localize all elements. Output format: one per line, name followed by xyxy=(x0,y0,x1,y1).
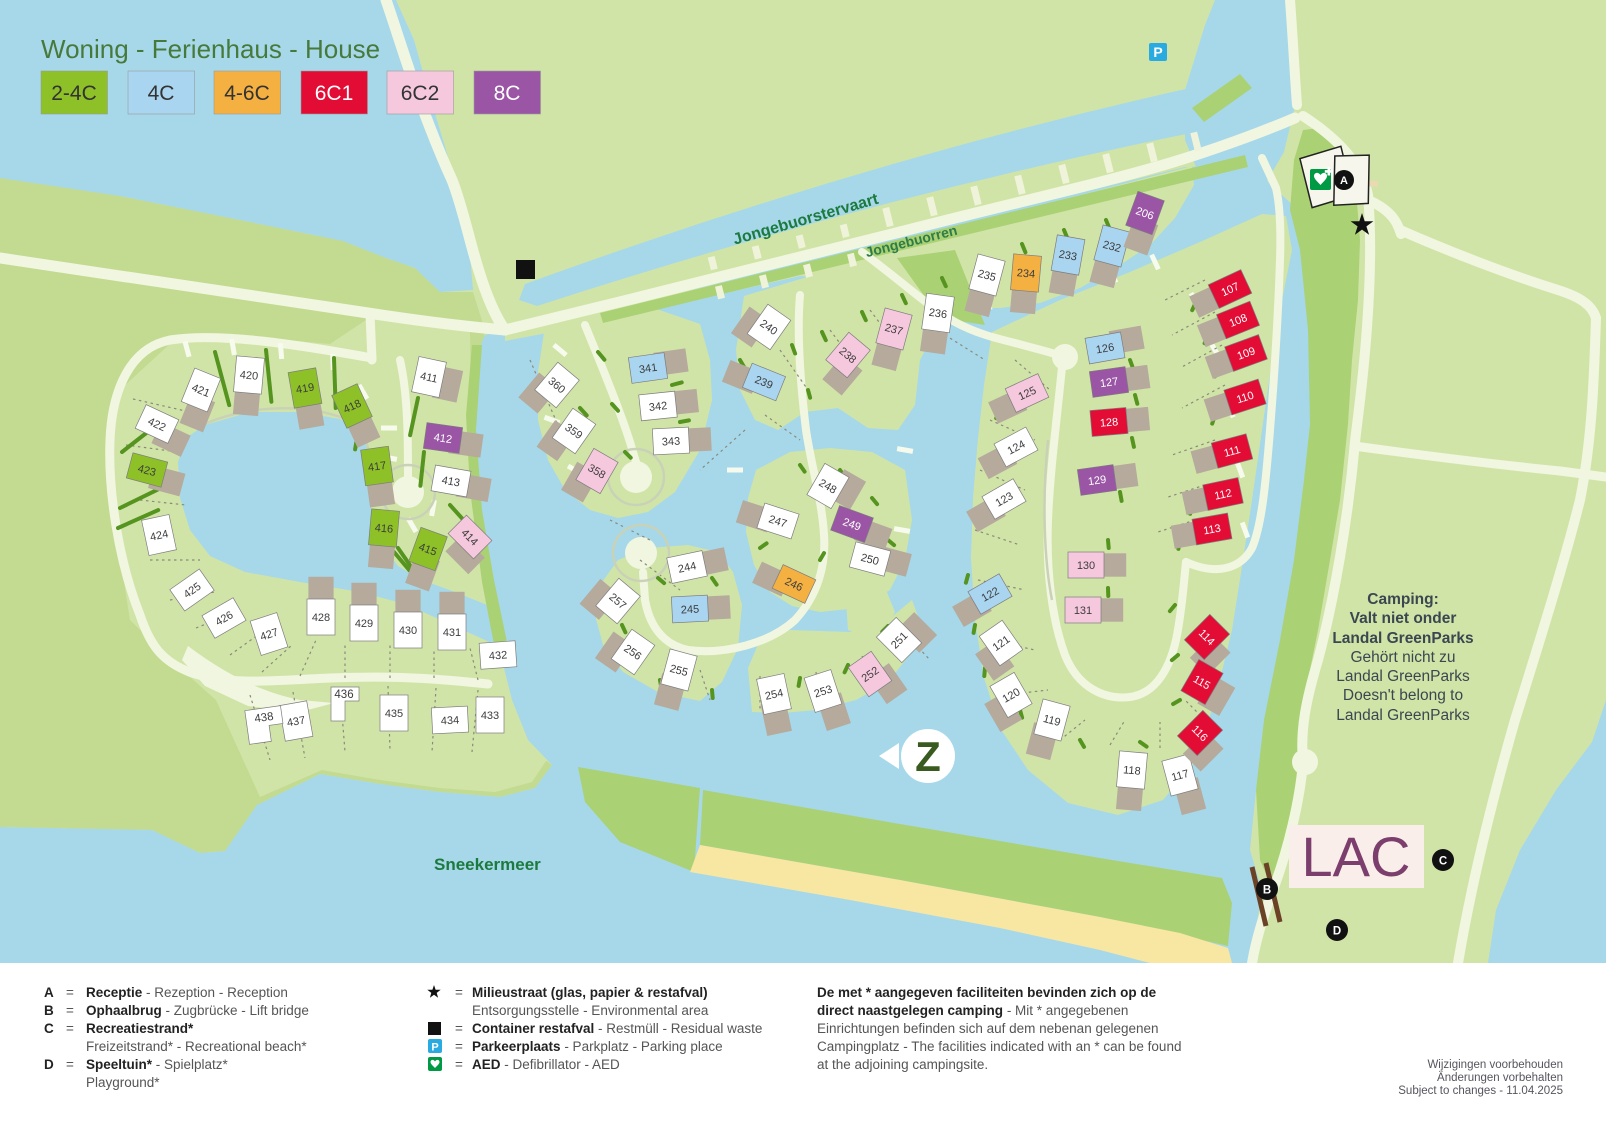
svg-text:130: 130 xyxy=(1077,560,1095,572)
svg-text:=: = xyxy=(66,985,74,1000)
svg-text:Landal GreenParks: Landal GreenParks xyxy=(1332,630,1473,647)
svg-text:131: 131 xyxy=(1074,605,1092,617)
svg-text:Wijzigingen voorbehouden: Wijzigingen voorbehouden xyxy=(1427,1059,1563,1071)
svg-text:Woning - Ferienhaus - House: Woning - Ferienhaus - House xyxy=(41,34,380,64)
svg-text:245: 245 xyxy=(681,604,700,617)
svg-text:Freizeitstrand* - Recreationa: Freizeitstrand* - Recreational beach* xyxy=(86,1039,307,1054)
svg-text:P: P xyxy=(431,1042,438,1054)
svg-text:428: 428 xyxy=(312,612,330,624)
svg-text:Subject to changes - 11.04.202: Subject to changes - 11.04.2025 xyxy=(1398,1085,1563,1097)
svg-text:De met * aangegeven faciliteit: De met * aangegeven faciliteiten bevinde… xyxy=(817,985,1157,1000)
svg-text:Landal GreenParks: Landal GreenParks xyxy=(1336,668,1470,685)
svg-text:Campingplatz - The facilities: Campingplatz - The facilities indicated … xyxy=(817,1039,1181,1054)
svg-text:234: 234 xyxy=(1016,267,1035,281)
svg-text:Valt niet onder: Valt niet onder xyxy=(1350,610,1457,627)
svg-text:A: A xyxy=(1340,175,1348,187)
svg-text:=: = xyxy=(455,985,463,1000)
svg-text:=: = xyxy=(455,1057,463,1072)
svg-text:Doesn't belong to: Doesn't belong to xyxy=(1343,687,1463,704)
svg-text:Entsorgungsstelle - Environmen: Entsorgungsstelle - Environmental area xyxy=(472,1003,709,1018)
svg-text:C: C xyxy=(44,1021,54,1036)
svg-text:B: B xyxy=(44,1003,54,1018)
svg-text:Container restafval - Restmüll: Container restafval - Restmüll - Residua… xyxy=(472,1021,762,1036)
svg-text:AED - Defibrillator - AED: AED - Defibrillator - AED xyxy=(472,1057,620,1072)
svg-text:430: 430 xyxy=(399,625,417,637)
svg-text:D: D xyxy=(44,1057,54,1072)
svg-text:direct naastgelegen camping -: direct naastgelegen camping - Mit * ange… xyxy=(817,1003,1128,1018)
svg-text:431: 431 xyxy=(443,627,461,639)
svg-text:B: B xyxy=(1263,885,1271,897)
svg-text:417: 417 xyxy=(367,460,387,474)
svg-text:8C: 8C xyxy=(494,82,521,105)
svg-text:Landal GreenParks: Landal GreenParks xyxy=(1336,707,1470,724)
svg-text:at the adjoining campingsite.: at the adjoining campingsite. xyxy=(817,1057,988,1072)
svg-text:6C2: 6C2 xyxy=(401,82,440,105)
svg-text:432: 432 xyxy=(488,649,507,662)
svg-text:Einrichtungen befinden sich au: Einrichtungen befinden sich auf dem nebe… xyxy=(817,1021,1159,1036)
svg-text:Recreatiestrand*: Recreatiestrand* xyxy=(86,1021,194,1036)
svg-text:436: 436 xyxy=(334,689,353,701)
svg-text:129: 129 xyxy=(1087,474,1107,488)
svg-text:Änderungen vorbehalten: Änderungen vorbehalten xyxy=(1437,1072,1563,1084)
svg-text:=: = xyxy=(455,1039,463,1054)
svg-text:341: 341 xyxy=(638,362,658,376)
svg-text:Receptie - Rezeption - Recepti: Receptie - Rezeption - Reception xyxy=(86,985,288,1000)
svg-text:=: = xyxy=(66,1057,74,1072)
svg-text:434: 434 xyxy=(441,715,460,728)
svg-text:Sneekermeer: Sneekermeer xyxy=(434,855,541,874)
svg-text:A: A xyxy=(44,985,54,1000)
svg-text:343: 343 xyxy=(662,436,681,449)
svg-text:236: 236 xyxy=(928,307,948,321)
svg-text:=: = xyxy=(66,1021,74,1036)
svg-text:D: D xyxy=(1333,926,1341,938)
svg-text:6C1: 6C1 xyxy=(315,82,354,105)
svg-text:412: 412 xyxy=(433,432,453,446)
svg-text:Ophaalbrug - Zugbrücke - Lift: Ophaalbrug - Zugbrücke - Lift bridge xyxy=(86,1003,309,1018)
svg-text:342: 342 xyxy=(648,400,668,414)
svg-text:420: 420 xyxy=(239,369,258,383)
svg-text:416: 416 xyxy=(374,522,393,536)
svg-text:Milieustraat (glas, papier & r: Milieustraat (glas, papier & restafval) xyxy=(472,985,708,1000)
svg-text:2-4C: 2-4C xyxy=(51,82,97,105)
svg-text:128: 128 xyxy=(1099,416,1118,430)
svg-text:Parkeerplaats - Parkplatz - Pa: Parkeerplaats - Parkplatz - Parking plac… xyxy=(472,1039,723,1054)
svg-text:433: 433 xyxy=(481,710,499,722)
svg-text:Camping:: Camping: xyxy=(1367,591,1438,608)
svg-text:LAC: LAC xyxy=(1302,825,1411,888)
svg-text:Speeltuin* - Spielplatz*: Speeltuin* - Spielplatz* xyxy=(86,1057,229,1072)
svg-text:429: 429 xyxy=(355,618,373,630)
svg-text:P: P xyxy=(1153,44,1162,60)
svg-text:118: 118 xyxy=(1123,764,1142,777)
svg-text:127: 127 xyxy=(1099,376,1119,390)
svg-text:Z: Z xyxy=(915,733,941,780)
svg-text:4C: 4C xyxy=(148,82,175,105)
svg-text:Gehört nicht zu: Gehört nicht zu xyxy=(1350,649,1455,666)
svg-text:=: = xyxy=(455,1021,463,1036)
svg-text:Playground*: Playground* xyxy=(86,1075,160,1090)
svg-text:=: = xyxy=(66,1003,74,1018)
svg-text:435: 435 xyxy=(385,708,403,720)
svg-text:4-6C: 4-6C xyxy=(224,82,270,105)
svg-text:C: C xyxy=(1439,856,1447,868)
